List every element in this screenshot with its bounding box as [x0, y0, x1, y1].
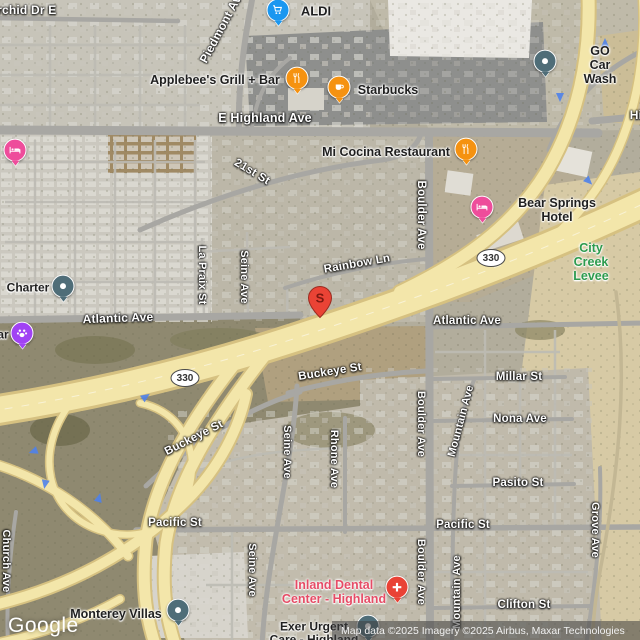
place-label[interactable]: Charter	[7, 281, 50, 294]
street-label: Boulder Ave	[415, 391, 427, 457]
street-label: Piedmont Ave	[197, 0, 248, 65]
street-label: Clifton St	[497, 599, 550, 611]
street-label: Atlantic Ave	[82, 310, 153, 326]
street-label: Boulder Ave	[415, 180, 427, 249]
street-label: Buckeye St	[297, 361, 362, 383]
place-label[interactable]: Starbucks	[358, 83, 418, 97]
street-label: Seine Ave	[281, 425, 293, 479]
place-label[interactable]: GO Car Wash	[580, 44, 620, 86]
street-label: Mountain Ave	[451, 555, 463, 629]
google-logo[interactable]: Google	[8, 614, 79, 638]
street-label: Atlantic Ave	[433, 315, 501, 327]
street-label: Seine Ave	[238, 250, 250, 304]
place-label[interactable]: ALDI	[301, 5, 331, 20]
street-label: E Highland Ave	[218, 111, 312, 125]
street-label: Mountain Ave	[446, 384, 477, 458]
street-label: Nona Ave	[493, 413, 547, 425]
search-result-marker[interactable]: S	[307, 285, 333, 319]
street-label: Pacific St	[436, 519, 490, 531]
street-label: Millar St	[496, 371, 543, 383]
copyright-text: Map data ©2025 Imagery ©2025 Airbus, Max…	[341, 625, 625, 637]
attribution-bar: Map data ©2025 Imagery ©2025 Airbus, Max…	[332, 621, 640, 640]
street-label: Grove Ave	[589, 502, 601, 558]
marker-letter: S	[316, 291, 325, 306]
street-label: Pasito St	[492, 477, 543, 489]
route-330-shield: 330	[477, 249, 506, 267]
street-label: Hi	[630, 108, 640, 122]
place-label[interactable]: Applebee's Grill + Bar	[150, 73, 280, 87]
street-label: Rhone Ave	[328, 430, 340, 488]
street-label: Orchid Dr E	[0, 3, 56, 17]
place-label[interactable]: Monterey Villas	[70, 607, 161, 621]
street-label: La Praix St	[196, 245, 208, 304]
map-label-layer: Orchid Dr EPiedmont AveE Highland AveHi2…	[0, 0, 640, 640]
street-label: Boulder Ave	[415, 539, 427, 605]
place-label[interactable]: Mi Cocina Restaurant	[322, 145, 450, 159]
place-label[interactable]: ar	[0, 328, 9, 341]
place-label[interactable]: Inland Dental Center - Highland	[282, 578, 386, 606]
street-label: 21st St	[232, 157, 272, 187]
map-canvas[interactable]: Orchid Dr EPiedmont AveE Highland AveHi2…	[0, 0, 640, 640]
street-label: Pacific St	[148, 517, 202, 529]
place-label[interactable]: City Creek Levee	[567, 241, 616, 283]
route-330-shield: 330	[171, 369, 200, 387]
street-label: Buckeye St	[163, 418, 225, 458]
place-label[interactable]: Bear Springs Hotel	[516, 196, 599, 224]
street-label: Rainbow Ln	[323, 252, 391, 275]
street-label: Seine Ave	[246, 543, 258, 597]
street-label: Church Ave	[0, 530, 12, 593]
